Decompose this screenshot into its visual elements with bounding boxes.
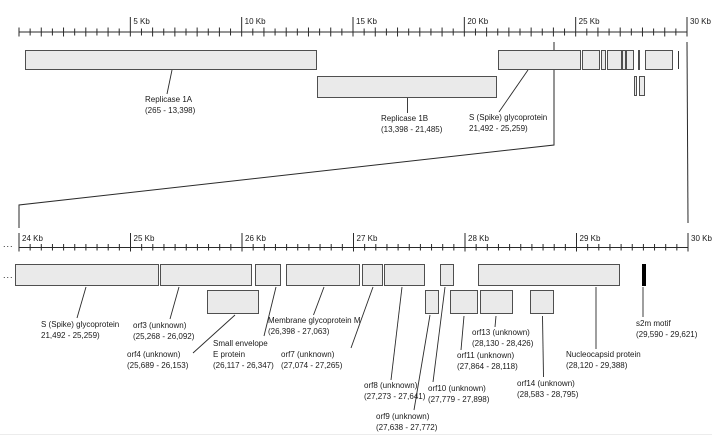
- feature-label-line: (28,583 - 28,795): [517, 389, 578, 400]
- feature-label-line: Membrane glycoprotein M: [268, 315, 360, 326]
- feature-label-line: 21,492 - 25,259): [41, 330, 119, 341]
- gene-box-bottom-orf8: [384, 264, 425, 286]
- gene-box-top-spike: [498, 50, 582, 70]
- top-ruler-tick-label: 5 Kb: [133, 17, 149, 26]
- feature-label-rep1b-top: Replicase 1B(13,398 - 21,485): [381, 113, 442, 135]
- feature-label-orf8: orf8 (unknown)(27,273 - 27,641): [364, 380, 425, 402]
- gene-box-bottom-spike: [15, 264, 159, 286]
- feature-label-line: 21,492 - 25,259): [469, 123, 547, 134]
- feature-label-line: (13,398 - 21,485): [381, 124, 442, 135]
- ruler-continuation-ellipsis: ...: [3, 240, 14, 249]
- bottom-hairline: [0, 434, 712, 435]
- feature-label-e: Small envelopeE protein(26,117 - 26,347): [213, 338, 274, 371]
- feature-label-line: E protein: [213, 349, 274, 360]
- feature-label-line: (265 - 13,398): [145, 105, 195, 116]
- leader-line-orf11: [461, 316, 464, 350]
- feature-label-line: (27,864 - 28,118): [457, 361, 518, 372]
- gene-box-bottom-orf14: [530, 290, 554, 314]
- top-ruler-tick-label: 25 Kb: [579, 17, 600, 26]
- gene-box-bottom-orf3: [160, 264, 252, 286]
- feature-label-spike-top: S (Spike) glycoprotein21,492 - 25,259): [469, 112, 547, 134]
- gene-box-top-orf8: [626, 50, 634, 70]
- feature-label-line: orf10 (unknown): [428, 383, 489, 394]
- feature-label-line: s2m motif: [636, 318, 697, 329]
- top-ruler-tick-label: 15 Kb: [356, 17, 377, 26]
- bottom-ruler-tick-label: 30 Kb: [691, 234, 712, 243]
- feature-label-line: (27,273 - 27,641): [364, 391, 425, 402]
- gene-box-top-m: [607, 50, 622, 70]
- feature-label-line: S (Spike) glycoprotein: [41, 319, 119, 330]
- feature-label-orf11: orf11 (unknown)(27,864 - 28,118): [457, 350, 518, 372]
- feature-label-s2m: s2m motif(29,590 - 29,621): [636, 318, 697, 340]
- gene-box-bottom-orf10: [440, 264, 453, 286]
- feature-label-line: orf4 (unknown): [127, 349, 188, 360]
- feature-label-orf14: orf14 (unknown)(28,583 - 28,795): [517, 378, 578, 400]
- gene-box-top-orf3: [582, 50, 600, 70]
- genome-map-diagram: ... ... 5 Kb10 Kb15 Kb20 Kb25 Kb30 Kb24 …: [0, 0, 712, 439]
- feature-label-m: Membrane glycoprotein M(26,398 - 27,063): [268, 315, 360, 337]
- gene-box-top-rep1b: [317, 76, 497, 98]
- bottom-ruler-tick-label: 29 Kb: [580, 234, 601, 243]
- gene-box-top-n: [645, 50, 673, 70]
- feature-label-line: orf7 (unknown): [281, 349, 342, 360]
- feature-label-line: orf11 (unknown): [457, 350, 518, 361]
- leader-line-rep1a: [167, 70, 172, 94]
- bottom-ruler-tick-label: 28 Kb: [468, 234, 489, 243]
- feature-label-orf3: orf3 (unknown)(25,268 - 26,092): [133, 320, 194, 342]
- gene-box-top-s2m: [678, 51, 680, 69]
- feature-label-line: (29,590 - 29,621): [636, 329, 697, 340]
- bottom-ruler-tick-label: 25 Kb: [134, 234, 155, 243]
- feature-label-line: (25,689 - 26,153): [127, 360, 188, 371]
- leader-line-spike-top: [499, 70, 528, 112]
- leader-line-orf3: [170, 287, 179, 319]
- bottom-ruler-tick-label: 24 Kb: [22, 234, 43, 243]
- gene-box-bottom-e: [255, 264, 281, 286]
- feature-label-line: (27,779 - 27,898): [428, 394, 489, 405]
- top-ruler-tick-label: 20 Kb: [467, 17, 488, 26]
- feature-label-line: (26,117 - 26,347): [213, 360, 274, 371]
- feature-label-line: orf13 (unknown): [472, 327, 533, 338]
- feature-label-n: Nucleocapsid protein(28,120 - 29,388): [566, 349, 641, 371]
- feature-label-line: Replicase 1B: [381, 113, 442, 124]
- feature-label-line: orf9 (unknown): [376, 411, 437, 422]
- leader-line-orf8: [391, 287, 402, 380]
- feature-label-orf9: orf9 (unknown)(27,638 - 27,772): [376, 411, 437, 433]
- feature-label-orf7: orf7 (unknown)(27,074 - 27,265): [281, 349, 342, 371]
- bottom-ruler-tick-label: 26 Kb: [245, 234, 266, 243]
- feature-label-orf4: orf4 (unknown)(25,689 - 26,153): [127, 349, 188, 371]
- feature-label-line: orf3 (unknown): [133, 320, 194, 331]
- gene-box-bottom-orf4: [207, 290, 259, 314]
- feature-label-orf13: orf13 (unknown)(28,130 - 28,426): [472, 327, 533, 349]
- feature-label-line: (25,268 - 26,092): [133, 331, 194, 342]
- feature-label-line: (27,638 - 27,772): [376, 422, 437, 433]
- top-ruler-tick-label: 30 Kb: [690, 17, 711, 26]
- zoom-connector-right: [687, 42, 688, 223]
- feature-label-line: (27,074 - 27,265): [281, 360, 342, 371]
- gene-box-bottom-n: [478, 264, 619, 286]
- feature-label-line: Replicase 1A: [145, 94, 195, 105]
- top-ruler-tick-label: 10 Kb: [245, 17, 266, 26]
- feature-label-line: S (Spike) glycoprotein: [469, 112, 547, 123]
- leader-line-orf14: [543, 316, 544, 377]
- feature-label-orf10: orf10 (unknown)(27,779 - 27,898): [428, 383, 489, 405]
- gene-box-bottom-orf7: [362, 264, 383, 286]
- gene-box-bottom-orf11: [450, 290, 478, 314]
- leader-line-m: [314, 287, 325, 315]
- gene-box-top-e: [601, 50, 606, 70]
- feature-label-line: (26,398 - 27,063): [268, 326, 360, 337]
- gene-box-bottom-m: [286, 264, 360, 286]
- bottom-ruler-tick-label: 27 Kb: [357, 234, 378, 243]
- feature-label-line: orf14 (unknown): [517, 378, 578, 389]
- feature-label-spike: S (Spike) glycoprotein21,492 - 25,259): [41, 319, 119, 341]
- feature-label-line: (28,130 - 28,426): [472, 338, 533, 349]
- leader-line-orf13: [495, 316, 496, 327]
- feature-label-rep1a-top: Replicase 1A(265 - 13,398): [145, 94, 195, 116]
- gene-box-bottom-orf9: [425, 290, 440, 314]
- gene-box-top-orf9: [634, 76, 637, 96]
- gene-box-top-rep1a: [25, 50, 317, 70]
- feature-label-line: (28,120 - 29,388): [566, 360, 641, 371]
- gene-box-top-orf10: [638, 50, 641, 70]
- feature-label-line: Small envelope: [213, 338, 274, 349]
- track-continuation-ellipsis: ...: [3, 271, 14, 280]
- feature-label-line: Nucleocapsid protein: [566, 349, 641, 360]
- gene-box-top-orf11: [639, 76, 645, 96]
- gene-box-bottom-orf13: [480, 290, 513, 314]
- feature-label-line: orf8 (unknown): [364, 380, 425, 391]
- gene-box-bottom-s2m: [642, 264, 646, 286]
- leader-line-spike: [77, 287, 86, 318]
